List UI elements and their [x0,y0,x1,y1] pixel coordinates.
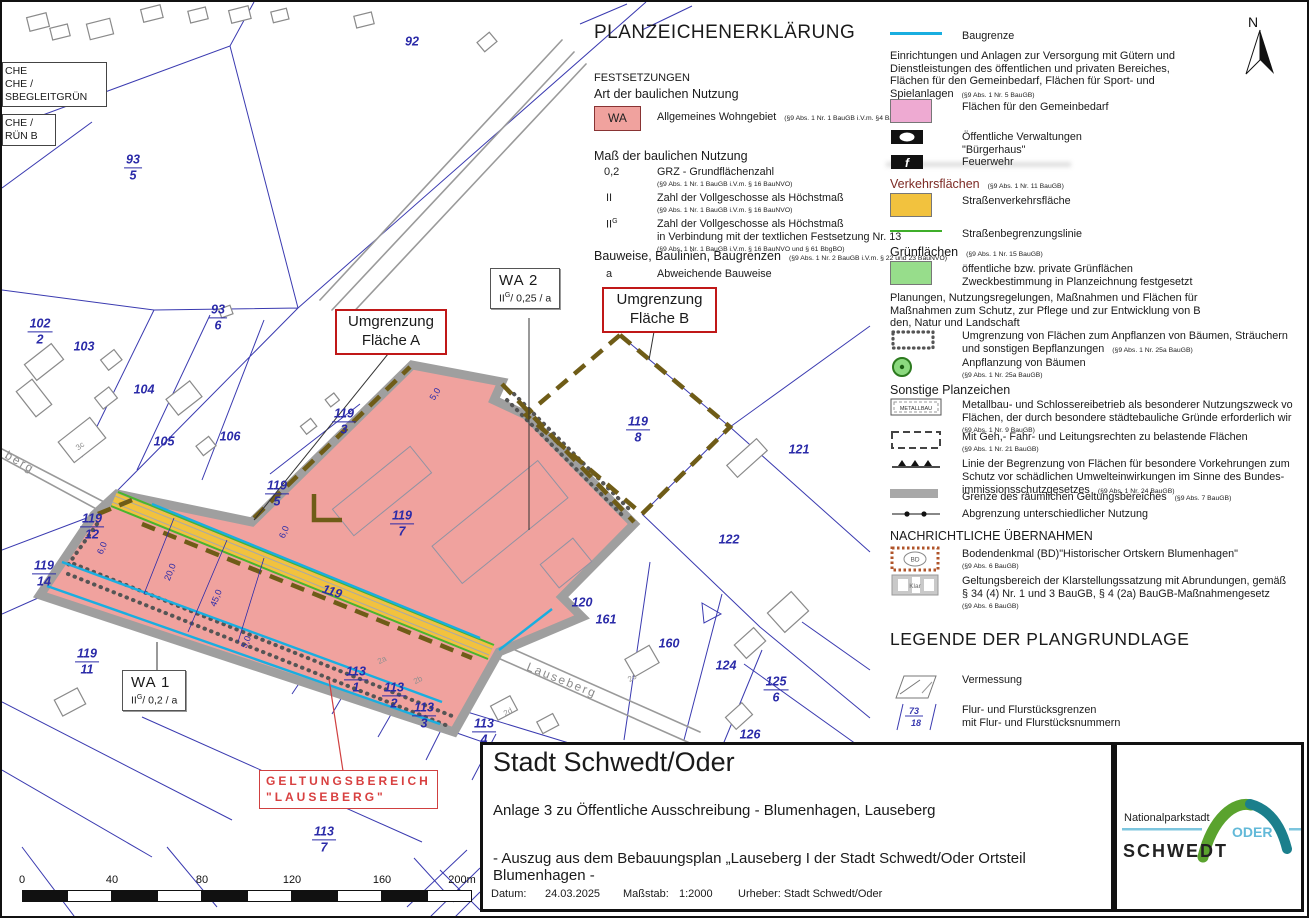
legend-item-label: Grenze des räumlichen Geltungsbereiches(… [962,491,1231,504]
parcel-label: 1195 [265,479,289,508]
mass-nutzung-heading: Maß der baulichen Nutzung [594,149,748,163]
legend-item-label: Feuerwehr [962,156,1014,169]
abweichende-label: Abweichende Bauweise [657,268,772,281]
metallbau-icon: METALLBAU [890,397,942,417]
scale-bar-segment [112,890,157,902]
parcel-label: 11914 [32,559,56,588]
legend-item-label: Umgrenzung von Flächen zum Anpflanzen vo… [962,330,1288,356]
legend-symbol: Klar [890,573,950,602]
parcel-label: 11912 [80,512,104,541]
abgrenzung-icon [890,509,942,519]
wa2-name: WA 2 [499,272,551,289]
flaeche-a-line2: Fläche A [345,332,437,351]
parcel-label: 92 [405,35,419,48]
legend-item-label: Straßenbegrenzungslinie [962,228,1082,241]
scale-bar-segment [202,890,247,902]
title-block-line2: - Auszug aus dem Bebauungsplan „Lauseber… [493,850,1111,884]
legend-item-label: Bodendenkmal (BD)"Historischer Ortskern … [962,548,1238,570]
legend-symbol [890,355,950,384]
grz-label: GRZ - Grundflächenzahl(§9 Abs. 1 Nr. 1 B… [657,166,792,189]
art-nutzung-heading: Art der baulichen Nutzung [594,87,739,101]
legend-symbol [890,193,950,217]
scale-bar-segment [22,890,67,902]
wa-swatch: WA [594,106,641,131]
flurgrenze-icon: 7318 [890,702,938,732]
wa-label: Allgemeines Wohngebiet(§9 Abs. 1 Nr. 1 B… [657,111,914,124]
vermessung-icon [890,672,940,702]
scale-bar-segment [382,890,427,902]
title-block-line1: Anlage 3 zu Öffentliche Ausschreibung - … [493,802,936,819]
massstab-value: 1:2000 [679,888,713,900]
title-block-city: Stadt Schwedt/Oder [493,747,735,778]
scale-bar-segment [67,890,112,902]
legend-symbol: f [890,154,950,175]
datum-label: Datum: [491,888,526,900]
scale-bar-segment [427,890,472,902]
plan-page: 9351022103104105106936921193119511971198… [0,0,1309,918]
parcel-label: 1137 [312,825,336,854]
legend-item-label: Anpflanzung von Bäumen(§9 Abs. 1 Nr. 25a… [962,357,1086,379]
legend-symbol [890,129,950,150]
schwedt-logo: Nationalparkstadt ODER SCHWEDT [1117,745,1301,909]
title-block: Stadt Schwedt/Oder Anlage 3 zu Öffentlic… [480,742,1114,912]
geltungsgrenze-icon [890,489,938,498]
scale-tick-label: 160 [373,874,391,886]
svg-text:BD: BD [910,557,919,564]
clipped-label-box: CHE /RÜN B [2,114,56,146]
legend-symbol: 7318 [890,702,950,737]
legend-item-label: Grünflächen(§9 Abs. 1 Nr. 15 BauGB) [890,245,1043,259]
scale-tick-label: 200m [448,874,476,886]
logo-oder-text: ODER [1232,824,1272,840]
parcel-label: 1022 [28,317,53,346]
baum-icon [890,355,914,379]
legend-symbol: METALLBAU [890,397,950,422]
parcel-label: 935 [124,153,142,182]
scale-bar-segment [247,890,292,902]
parcel-label: 106 [220,430,241,443]
legend-item-label: Verkehrsflächen(§9 Abs. 1 Nr. 11 BauGB) [890,177,1064,191]
datum-value: 24.03.2025 [545,888,600,900]
massstab-label: Maßstab: [623,888,669,900]
legend-symbol [890,226,950,232]
svg-text:METALLBAU: METALLBAU [900,406,932,412]
gehrecht-icon [890,429,942,451]
geltungsbereich-line1: GELTUNGSBEREICH [266,774,431,790]
legend-symbol [890,456,950,475]
legend-item-label: Öffentliche Verwaltungen"Bürgerhaus" [962,131,1082,157]
svg-text:18: 18 [911,718,921,728]
geltungsbereich-box: GELTUNGSBEREICH "LAUSEBERG" [259,770,438,809]
vollgeschosse-label: Zahl der Vollgeschosse als Höchstmaß(§9 … [657,192,844,215]
legend-item-label: öffentliche bzw. private GrünflächenZwec… [962,263,1192,289]
legend-item-label: Metallbau- und Schlossereibetrieb als be… [962,399,1293,434]
parcel-label: 936 [209,303,227,332]
parcel-label: 1193 [332,407,356,436]
legend-item-label: Straßenverkehrsfläche [962,195,1071,208]
parcel-label: 120 [572,596,593,609]
wa2-label-box: WA 2 IIG/ 0,25 / a [490,268,560,309]
scale-bar-segment [157,890,202,902]
parcel-label: 1131 [344,665,368,694]
klarstellung-icon: Klar [890,573,940,597]
legend-symbol [890,99,950,123]
parcel-label: 105 [154,435,175,448]
legend-item-label: Abgrenzung unterschiedlicher Nutzung [962,508,1148,521]
legend-item-label: Sonstige Planzeichen [890,383,1010,397]
scale-tick-label: 120 [283,874,301,886]
legend-item-label: Flächen für den Gemeinbedarf [962,101,1108,114]
scale-bar-segment [292,890,337,902]
parcel-label: 11911 [75,647,99,676]
legend-item-label: Vermessung [962,674,1022,687]
grz-symbol: 0,2 [604,166,619,178]
legend-item-label: Baugrenze [962,30,1014,43]
urheber-value: Urheber: Stadt Schwedt/Oder [738,888,882,900]
svg-text:73: 73 [909,706,919,716]
legend-symbol [890,328,950,357]
wa1-name: WA 1 [131,674,177,691]
north-label: N [1248,14,1258,30]
parcel-label: 1132 [382,681,406,710]
feuerwehr-icon: f [890,154,924,170]
bodendenkmal-icon: BD [890,546,940,572]
abweichende-symbol: a [606,268,612,280]
scale-tick-label: 0 [19,874,25,886]
legend-left-column: PLANZEICHENERKLÄRUNG FESTSETZUNGEN Art d… [594,2,894,742]
legend-symbol [890,261,950,285]
logo-block: Nationalparkstadt ODER SCHWEDT [1114,742,1304,912]
logo-subtitle-text: Nationalparkstadt [1124,812,1210,824]
north-arrow-icon [1246,30,1274,74]
legend-symbol [890,489,950,498]
legend-item-label: Geltungsbereich der Klarstellungssatzung… [962,575,1286,610]
legend-item-label: Einrichtungen und Anlagen zur Versorgung… [890,50,1175,101]
legend-title: PLANZEICHENERKLÄRUNG [594,22,855,44]
legend-item-label: LEGENDE DER PLANGRUNDLAGE [890,629,1189,650]
flaeche-a-line1: Umgrenzung [345,313,437,332]
vollgeschosse-symbol: II [606,192,612,204]
parcel-label: 1133 [412,701,436,730]
legend-right-column: BaugrenzeEinrichtungen und Anlagen zur V… [890,2,1205,742]
legend-symbol [890,429,950,456]
svg-text:Klar: Klar [909,583,921,590]
scale-tick-label: 40 [106,874,118,886]
verwaltung-icon [890,129,924,145]
legend-symbol [890,28,950,35]
geltungsbereich-line2: "LAUSEBERG" [266,790,431,806]
anpflanz-umgrenzung-icon [890,328,936,352]
vollgeschosse-g-symbol: IIG [606,218,618,231]
legend-symbol [890,506,950,524]
scale-tick-label: 80 [196,874,208,886]
festsetzungen-heading: FESTSETZUNGEN [594,72,690,84]
logo-schwedt-text: SCHWEDT [1123,841,1228,861]
legend-item-label: NACHRICHTLICHE ÜBERNAHMEN [890,529,1093,543]
schutzlinie-icon [890,456,942,470]
clipped-label-box: CHECHE /SBEGLEITGRÜN [2,62,107,107]
scale-bar-segment [337,890,382,902]
parcel-label: 104 [134,383,155,396]
wa1-spec: IIG/ 0,2 / a [131,694,177,707]
parcel-label: 103 [74,340,95,353]
legend-item-label: Flur- und Flurstücksgrenzenmit Flur- und… [962,704,1120,730]
legend-item-label: Planungen, Nutzungsregelungen, Maßnahmen… [890,292,1201,330]
wa2-spec: IIG/ 0,25 / a [499,292,551,305]
legend-item-label: Mit Geh,- Fahr- und Leitungsrechten zu b… [962,431,1248,453]
umgrenzung-flaeche-a-box: Umgrenzung Fläche A [335,309,447,355]
wa1-label-box: WA 1 IIG/ 0,2 / a [122,670,186,711]
parcel-label: 1197 [390,509,414,538]
